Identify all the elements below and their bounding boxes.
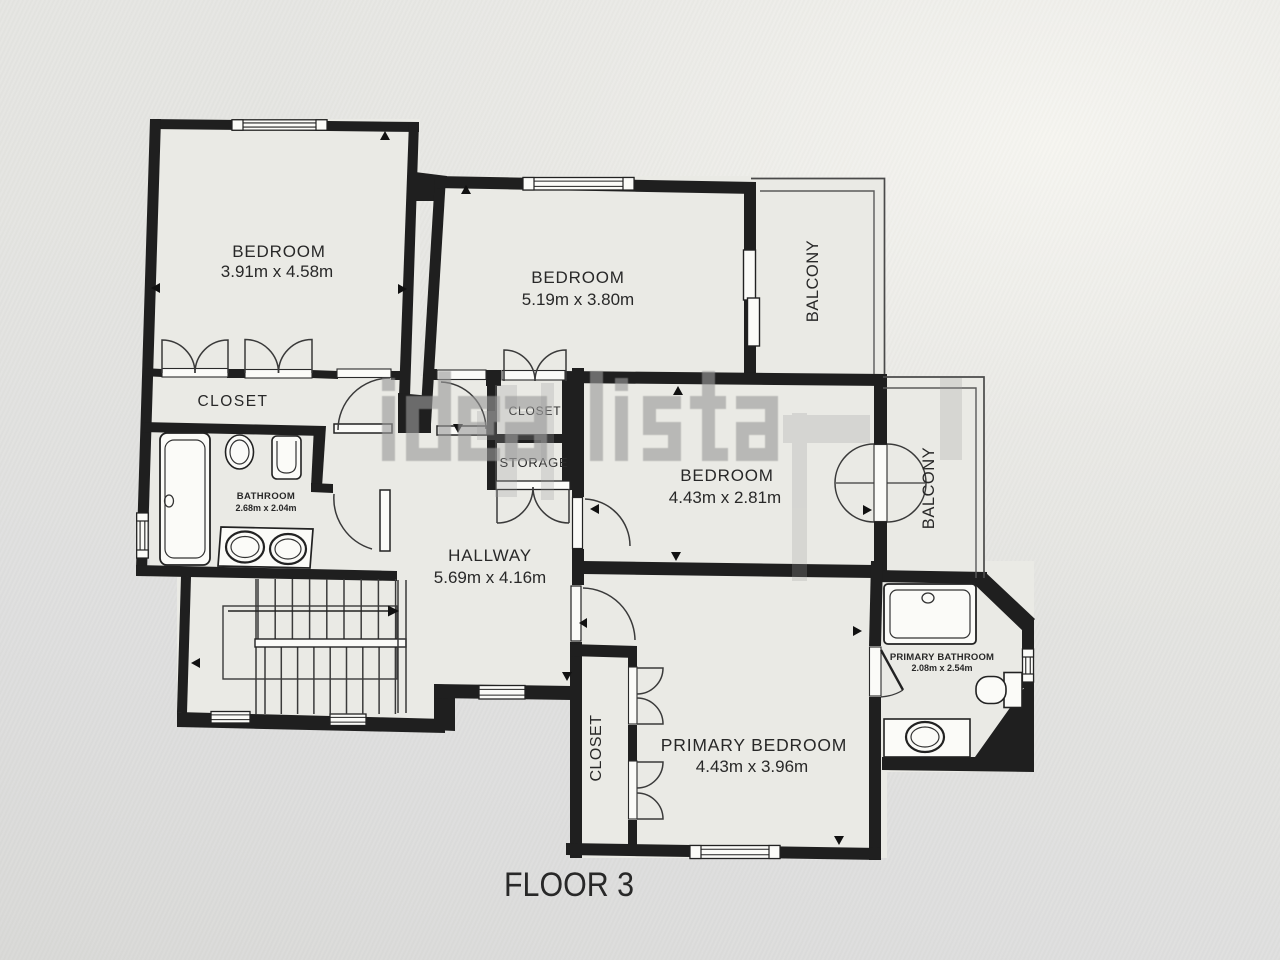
svg-text:BATHROOM: BATHROOM bbox=[237, 491, 295, 502]
svg-text:BALCONY: BALCONY bbox=[804, 240, 822, 322]
svg-text:BEDROOM: BEDROOM bbox=[232, 242, 325, 261]
svg-text:5.19m x 3.80m: 5.19m x 3.80m bbox=[522, 290, 634, 309]
svg-text:FLOOR 3: FLOOR 3 bbox=[504, 866, 634, 904]
svg-text:PRIMARY BEDROOM: PRIMARY BEDROOM bbox=[661, 735, 847, 755]
svg-text:CLOSET: CLOSET bbox=[588, 714, 605, 781]
svg-text:2.68m x 2.04m: 2.68m x 2.04m bbox=[235, 503, 296, 513]
svg-text:HALLWAY: HALLWAY bbox=[448, 546, 532, 565]
svg-text:3.91m x 4.58m: 3.91m x 4.58m bbox=[221, 262, 333, 281]
svg-text:5.69m x 4.16m: 5.69m x 4.16m bbox=[434, 568, 546, 587]
svg-text:4.43m x 2.81m: 4.43m x 2.81m bbox=[669, 488, 781, 507]
svg-text:BEDROOM: BEDROOM bbox=[680, 466, 773, 485]
svg-text:4.43m x 3.96m: 4.43m x 3.96m bbox=[696, 757, 808, 776]
svg-text:BEDROOM: BEDROOM bbox=[531, 268, 624, 287]
svg-text:BALCONY: BALCONY bbox=[920, 447, 938, 529]
svg-text:CLOSET: CLOSET bbox=[197, 393, 268, 410]
svg-text:2.08m x 2.54m: 2.08m x 2.54m bbox=[911, 663, 972, 673]
svg-text:PRIMARY BATHROOM: PRIMARY BATHROOM bbox=[890, 652, 994, 663]
